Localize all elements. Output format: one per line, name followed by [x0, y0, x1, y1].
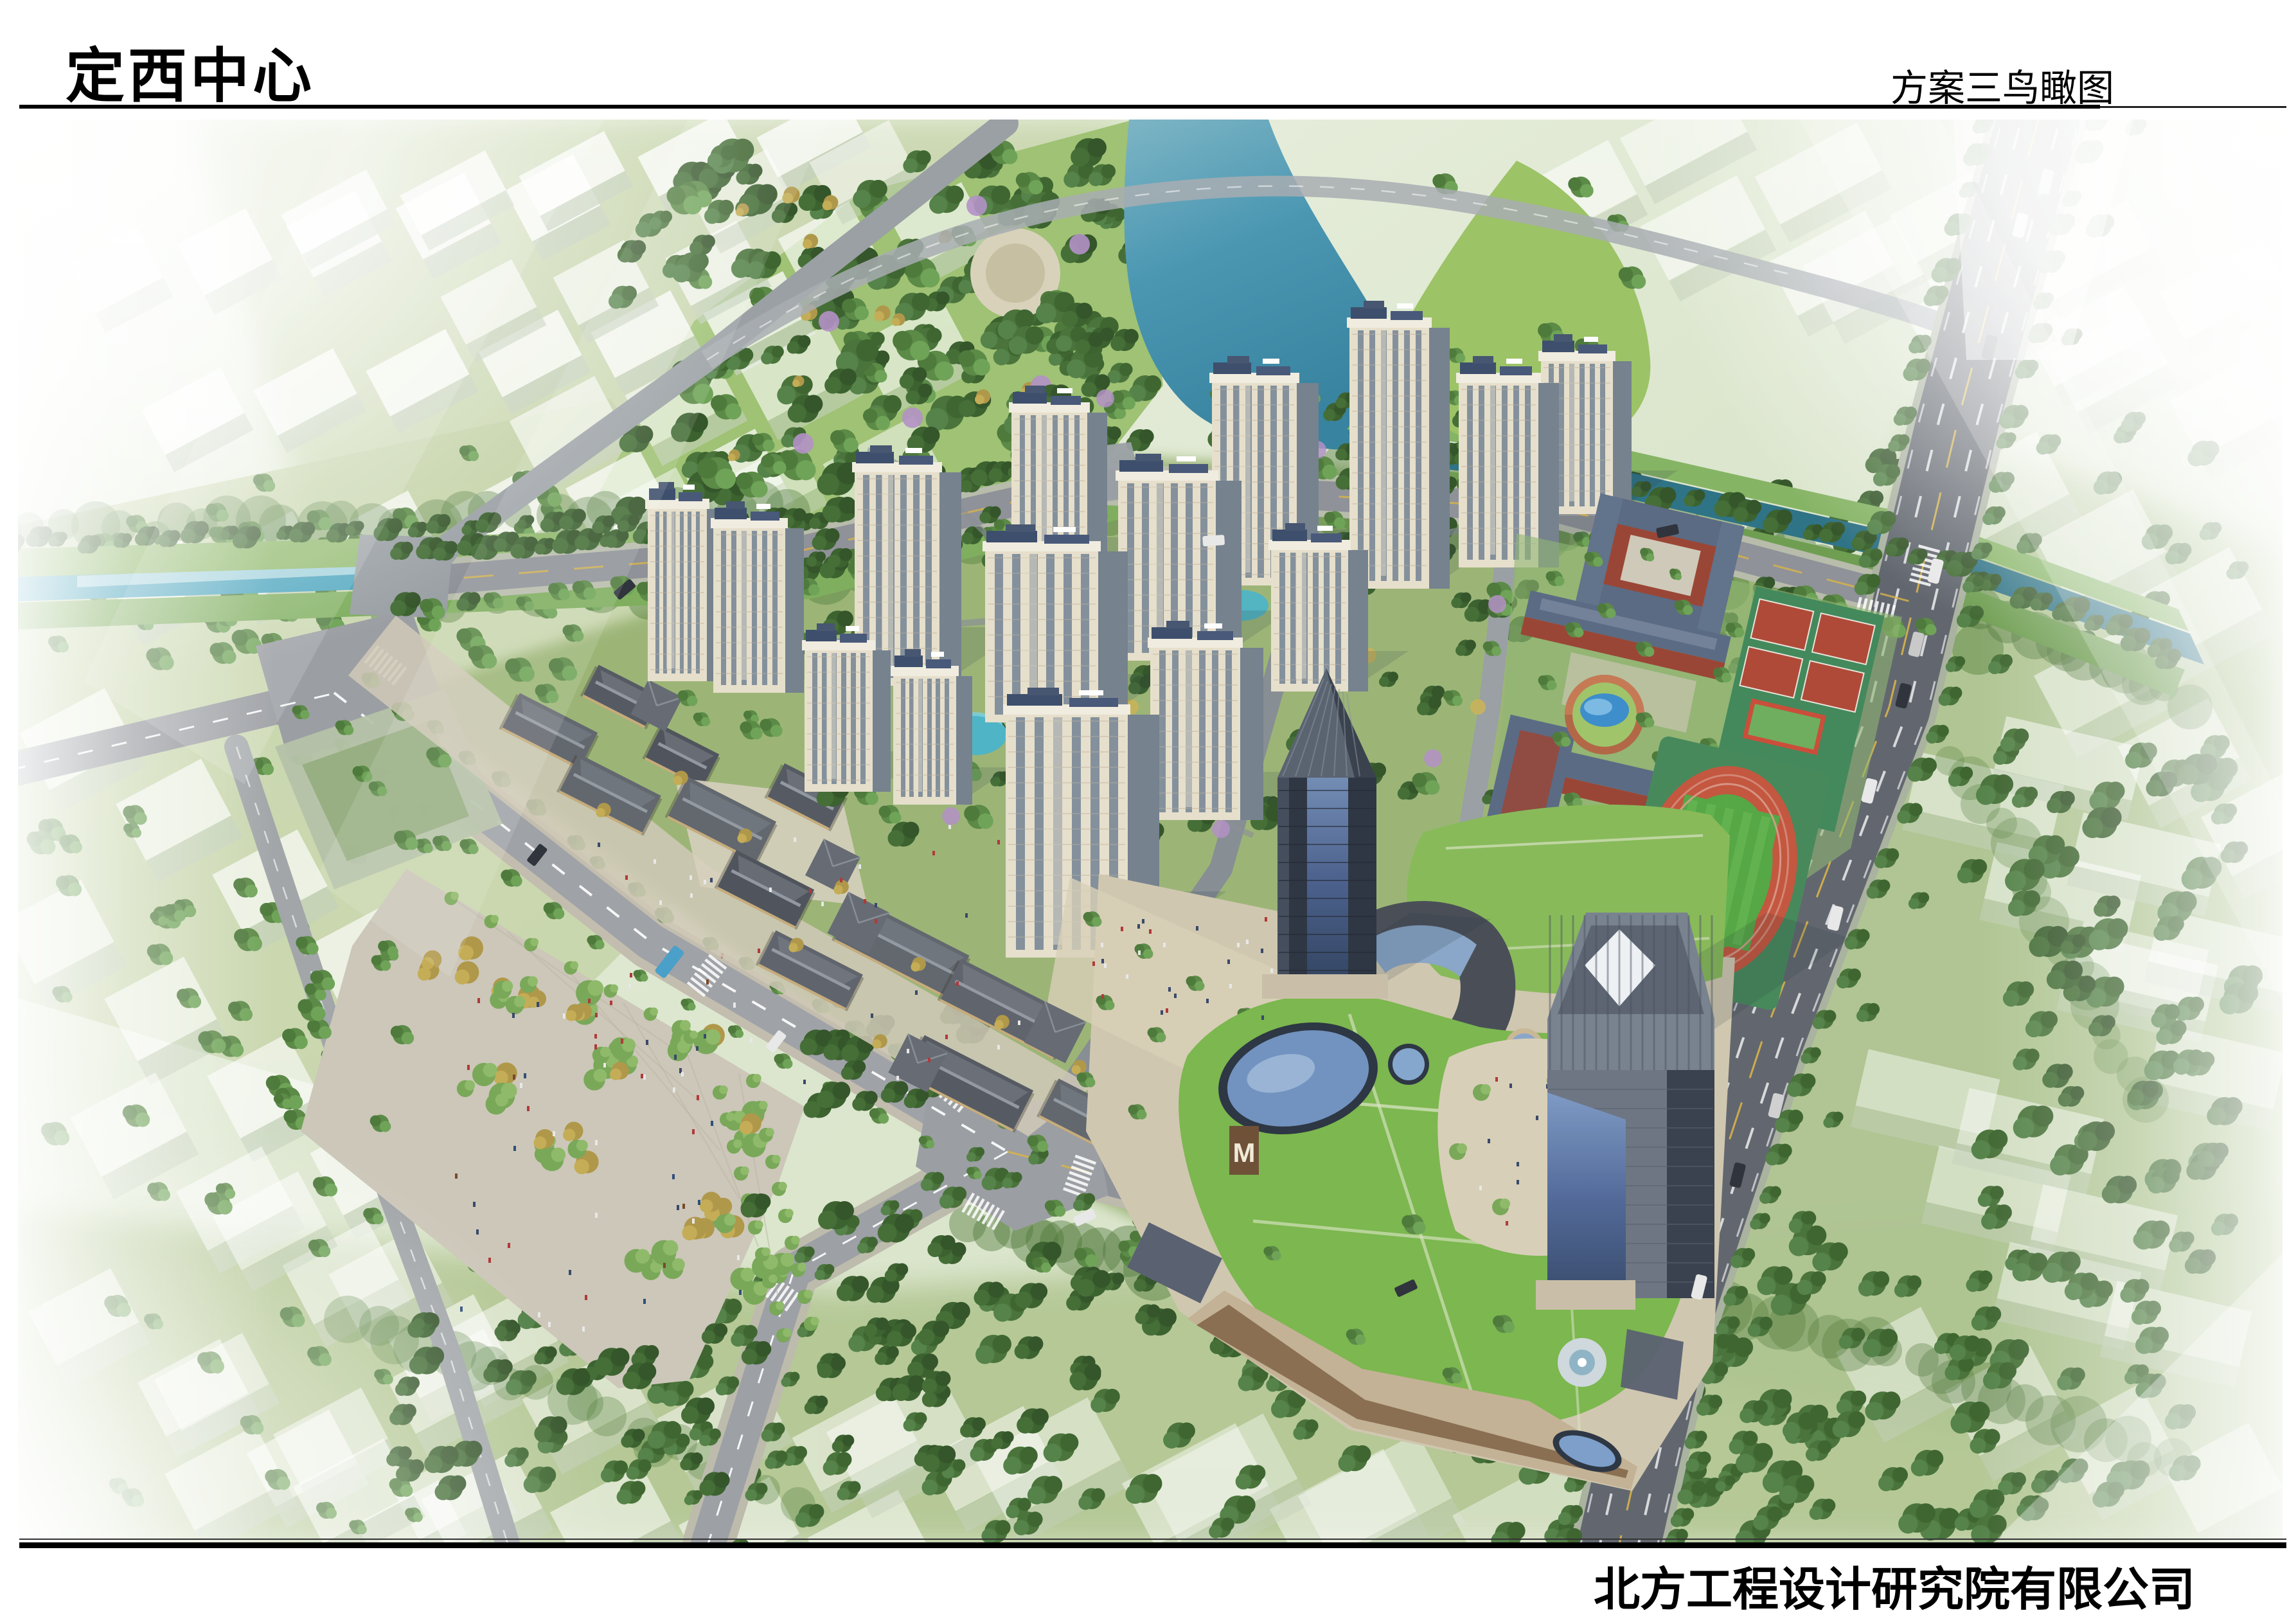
svg-text:M: M [1233, 1138, 1256, 1168]
